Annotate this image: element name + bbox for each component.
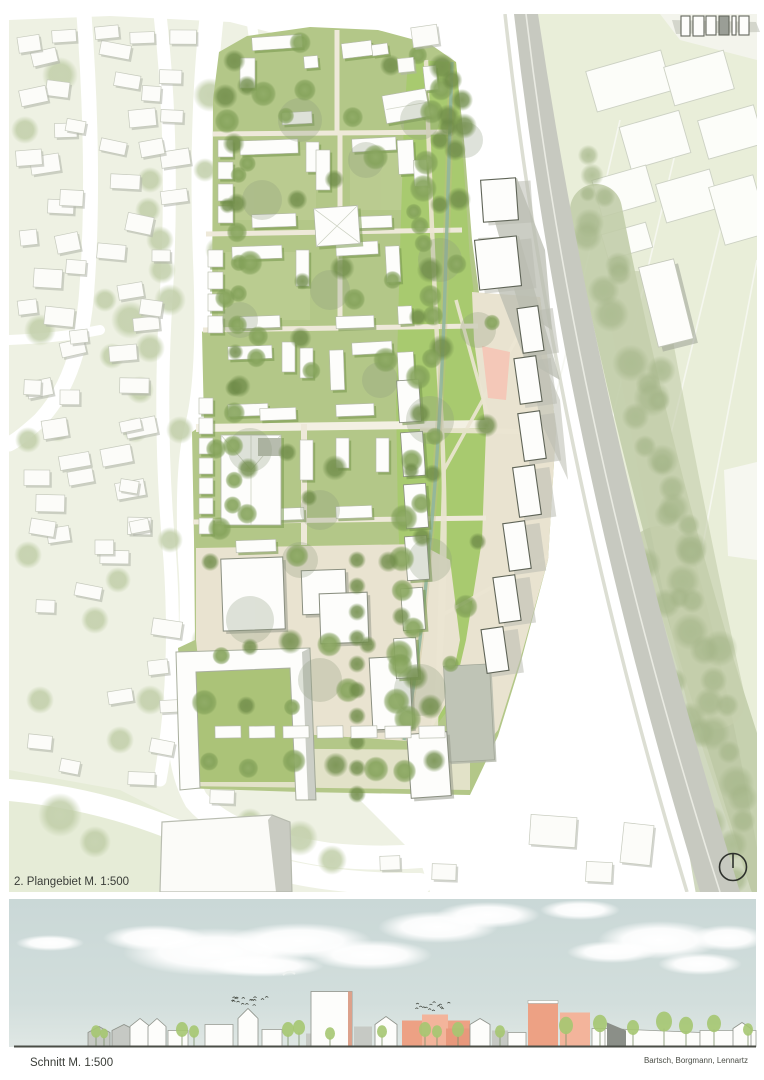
svg-text:2. Plangebiet M. 1:500: 2. Plangebiet M. 1:500 xyxy=(14,876,129,888)
svg-text:Bartsch, Borgmann, Lennartz: Bartsch, Borgmann, Lennartz xyxy=(644,1056,748,1065)
svg-text:Schnitt M. 1:500: Schnitt M. 1:500 xyxy=(30,1057,113,1069)
